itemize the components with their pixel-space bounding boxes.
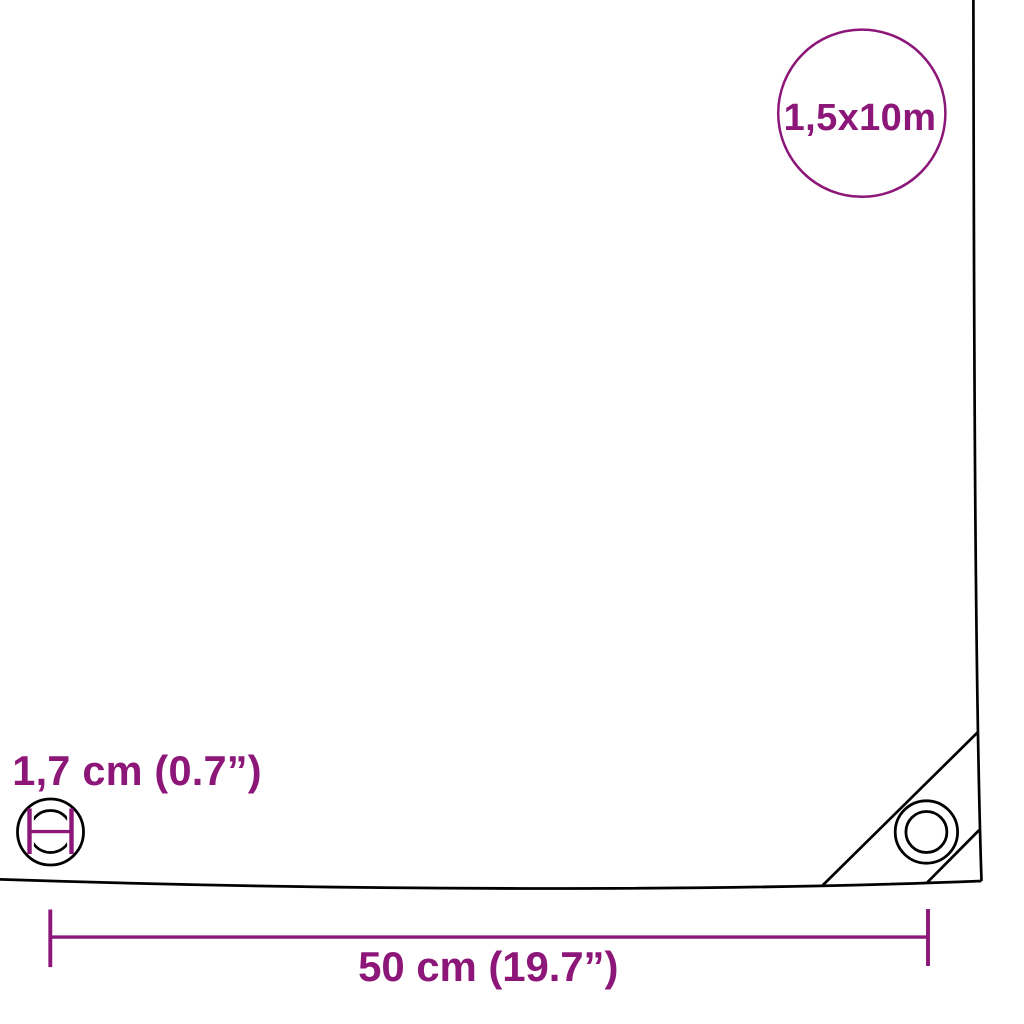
svg-text:1,7 cm (0.7”): 1,7 cm (0.7”) <box>12 747 261 794</box>
svg-text:50 cm (19.7”): 50 cm (19.7”) <box>358 943 618 990</box>
svg-text:1,5x10m: 1,5x10m <box>784 97 937 139</box>
